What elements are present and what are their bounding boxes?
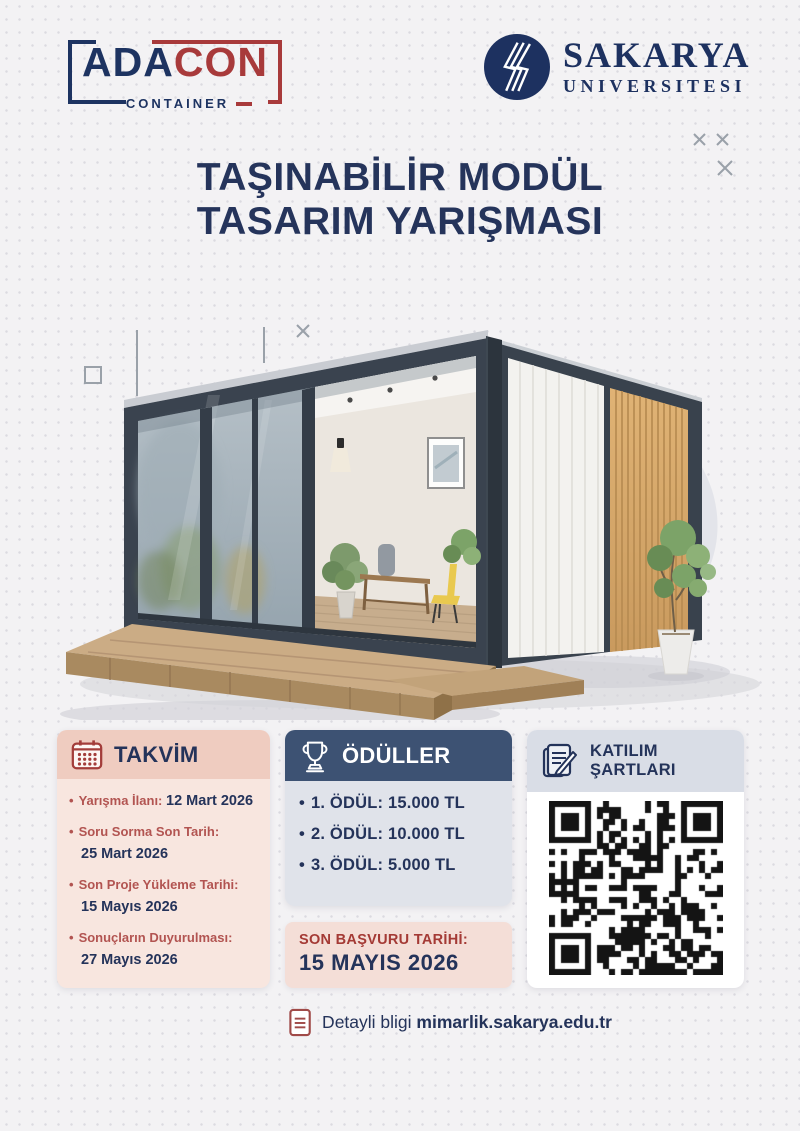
logo-frame-segment xyxy=(68,100,126,104)
x-mark-icon xyxy=(717,160,733,176)
adacon-ada: ADA xyxy=(82,39,174,85)
title-line1: TAŞINABİLİR MODÜL xyxy=(0,156,800,200)
katilim-card: KATILIMŞARTLARI xyxy=(527,730,744,988)
title-line2: TASARIM YARIŞMASI xyxy=(0,200,800,244)
adacon-logo: ADACON CONTAINER xyxy=(68,42,282,102)
container-house-image xyxy=(40,300,760,720)
footer-text: Detayli bligi mimarlik.sakarya.edu.tr xyxy=(322,1012,612,1033)
sakarya-logo: SAKARYA UNIVERSITESI xyxy=(483,33,750,101)
katilim-title: KATILIMŞARTLARI xyxy=(590,742,676,780)
adacon-wordmark: ADACON xyxy=(68,42,282,83)
footer-info: Detayli bligi mimarlik.sakarya.edu.tr xyxy=(288,1008,612,1037)
takvim-item: •Son Proje Yükleme Tarihi:15 Mayıs 2026 xyxy=(69,876,258,918)
sakarya-subtitle: UNIVERSITESI xyxy=(563,76,750,97)
qr-code xyxy=(549,801,723,975)
trophy-icon xyxy=(298,738,332,774)
sakarya-emblem-icon xyxy=(483,33,551,101)
takvim-title: TAKVİM xyxy=(114,742,199,768)
sakarya-name: SAKARYA xyxy=(563,37,750,73)
cabin-side-face xyxy=(500,340,702,666)
calendar-icon xyxy=(70,738,104,772)
adacon-con: CON xyxy=(174,39,268,85)
takvim-item: •Sonuçların Duyurulması:27 Mayıs 2026 xyxy=(69,929,258,971)
oduller-title: ÖDÜLLER xyxy=(342,743,450,769)
cabin-interior xyxy=(315,356,481,648)
odul-item: •3. ÖDÜL: 5.000 TL xyxy=(299,856,498,875)
logo-dash xyxy=(236,102,252,106)
odul-item: •1. ÖDÜL: 15.000 TL xyxy=(299,794,498,813)
takvim-item: •Yarışma İlanı: 12 Mart 2026 xyxy=(69,791,258,812)
footer-link: mimarlik.sakarya.edu.tr xyxy=(416,1012,612,1032)
son-basvuru-box: SON BAŞVURU TARİHİ: 15 MAYIS 2026 xyxy=(285,922,512,988)
adacon-subtitle: CONTAINER xyxy=(126,96,229,111)
son-basvuru-date: 15 MAYIS 2026 xyxy=(299,950,498,976)
poster: ADACON CONTAINER SAKARYA UNIVERSITESI TA… xyxy=(0,0,800,1131)
takvim-item: •Soru Sorma Son Tarih:25 Mart 2026 xyxy=(69,823,258,865)
x-mark-icon xyxy=(693,133,706,146)
son-basvuru-label: SON BAŞVURU TARİHİ: xyxy=(299,932,498,948)
oduller-card: ÖDÜLLER •1. ÖDÜL: 15.000 TL •2. ÖDÜL: 10… xyxy=(285,730,512,906)
takvim-card: TAKVİM •Yarışma İlanı: 12 Mart 2026 •Sor… xyxy=(57,730,270,988)
document-pencil-icon xyxy=(540,741,580,781)
document-icon xyxy=(288,1008,312,1037)
x-mark-icon xyxy=(716,133,729,146)
cabin-front-face xyxy=(124,330,488,668)
odul-item: •2. ÖDÜL: 10.000 TL xyxy=(299,825,498,844)
logo-frame-segment xyxy=(268,100,282,104)
cabin-corner-post xyxy=(486,336,502,668)
page-title: TAŞINABİLİR MODÜL TASARIM YARIŞMASI xyxy=(0,156,800,245)
